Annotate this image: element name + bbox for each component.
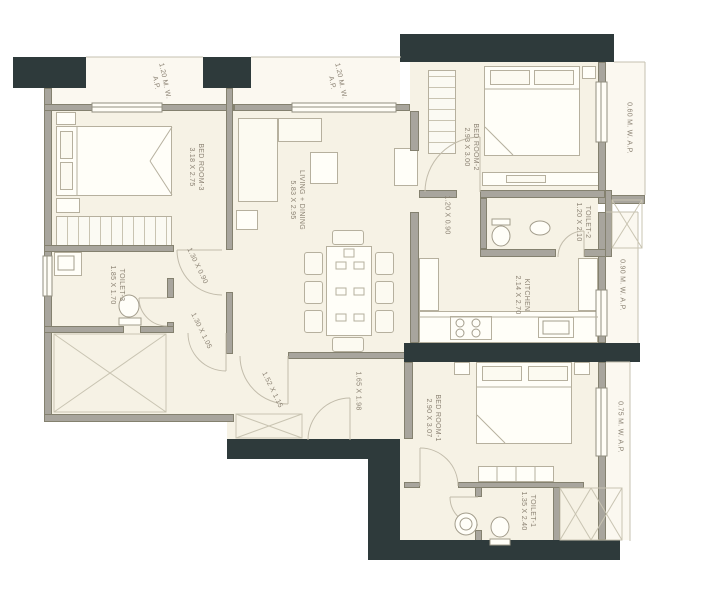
room-dims: 1.20 X 2.10	[574, 202, 583, 241]
room-label-living-dining: LIVING + DINING 5.83 X 2.95	[288, 170, 306, 230]
room-dims: 5.83 X 2.95	[288, 170, 297, 230]
room-dims: 2.93 X 3.00	[462, 123, 471, 170]
floor-plan-canvas: BED ROOM-3 3.18 X 2.75 LIVING + DINING 5…	[0, 0, 726, 600]
room-dims: 1.35 X 2.40	[519, 491, 528, 530]
projection-text: 0.60 M. W. A.P.	[624, 102, 633, 154]
room-dims: 2.14 X 2.70	[513, 275, 522, 314]
projection-text: 0.75 M. W. A.P.	[615, 401, 624, 453]
room-name: TOILET-3	[117, 265, 126, 304]
projection-text: 0.90 M. W. A.P.	[617, 259, 626, 311]
projection-label-right3: 0.75 M. W. A.P.	[615, 401, 624, 453]
room-label-toilet1: TOILET-1 1.35 X 2.40	[519, 491, 537, 530]
room-dims: 1.85 X 1.70	[108, 265, 117, 304]
passage-dims: 1.20 X 0.90	[442, 195, 451, 234]
projection-label-right2: 0.90 M. W. A.P.	[617, 259, 626, 311]
room-name: TOILET-1	[528, 491, 537, 530]
room-label-kitchen: KITCHEN 2.14 X 2.70	[513, 275, 531, 314]
room-name: BED ROOM-2	[471, 123, 480, 170]
room-dims: 2.90 X 3.07	[424, 394, 433, 441]
wc-fixture	[119, 219, 510, 545]
room-label-toilet2: TOILET-2 1.20 X 2.10	[574, 202, 592, 241]
room-name: LIVING + DINING	[297, 170, 306, 230]
place-setting	[336, 249, 364, 321]
room-name: KITCHEN	[522, 275, 531, 314]
room-dims: 3.18 X 2.75	[187, 143, 196, 190]
passage-dims: 1.65 X 1.98	[353, 371, 362, 410]
passage-dims-label: 1.65 X 1.98	[353, 371, 362, 410]
window	[43, 82, 607, 456]
room-name: BED ROOM-3	[196, 143, 205, 190]
room-label-bedroom3: BED ROOM-3 3.18 X 2.75	[187, 143, 205, 190]
room-label-bedroom2: BED ROOM-2 2.93 X 3.00	[462, 123, 480, 170]
room-label-bedroom1: BED ROOM-1 2.90 X 3.07	[424, 394, 442, 441]
room-name: BED ROOM-1	[433, 394, 442, 441]
projection-label-right1: 0.60 M. W. A.P.	[624, 102, 633, 154]
room-name: TOILET-2	[583, 202, 592, 241]
washbasin-icon	[58, 221, 550, 535]
passage-dims-label: 1.20 X 0.90	[442, 195, 451, 234]
room-label-toilet3: TOILET-3 1.85 X 1.70	[108, 265, 126, 304]
hob-burners	[456, 319, 569, 337]
